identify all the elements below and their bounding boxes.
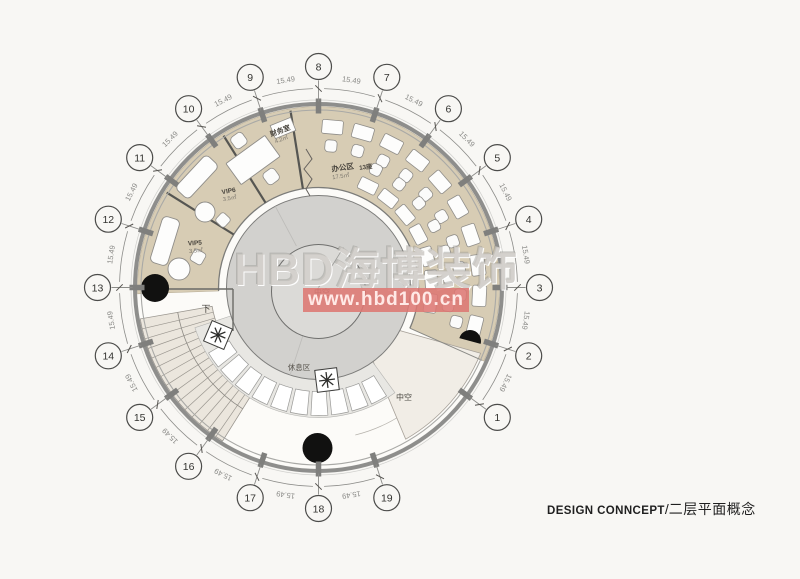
dimension-arc	[262, 89, 313, 97]
grid-bubble: 2	[516, 343, 542, 369]
chair	[449, 315, 464, 330]
dimension-label: 15.49	[497, 182, 514, 203]
desk	[321, 119, 343, 135]
dimension-arc	[324, 89, 375, 97]
chair	[324, 139, 337, 152]
grid-bubble: 16	[176, 453, 202, 479]
dimension-label: 15.49	[457, 129, 477, 149]
vip5-table	[168, 258, 190, 280]
grid-bubble-number: 10	[183, 104, 195, 116]
dimension-label: 15.49	[403, 92, 424, 109]
zone-label-atrium-lower: 中空	[396, 392, 412, 402]
grid-bubble: 9	[237, 64, 263, 90]
rest-seat-segment	[311, 391, 328, 415]
grid-bubble: 17	[237, 485, 263, 511]
dimension-tick	[479, 166, 480, 175]
dimension-label: 15.49	[123, 372, 140, 393]
grid-bubble: 10	[176, 96, 202, 122]
solid-marker	[303, 433, 333, 463]
vip6-table	[195, 202, 215, 222]
dimension-arc	[509, 231, 517, 282]
dimension-label: 15.49	[105, 310, 117, 330]
watermark-url: www.hbd100.cn	[308, 289, 464, 311]
grid-leader-line	[255, 91, 262, 111]
grid-bubble-number: 15	[134, 412, 146, 424]
zone-label-rest-area: 休息区	[288, 362, 311, 372]
grid-bubble: 19	[374, 485, 400, 511]
grid-bubble-number: 9	[247, 72, 253, 84]
grid-bubble-number: 2	[526, 351, 532, 363]
floorplan-page: 15.4915.4915.4915.4915.4915.4915.4915.49…	[0, 0, 800, 579]
dimension-arc	[324, 478, 375, 486]
dimension-tick	[153, 170, 162, 171]
grid-leader-line	[376, 464, 383, 484]
drawing-title-en: DESIGN CONNCEPT	[547, 505, 665, 517]
dimension-arc	[120, 293, 128, 344]
grid-bubble: 8	[306, 54, 332, 80]
dimension-label: 15.49	[520, 245, 532, 265]
grid-bubble: 5	[484, 145, 510, 171]
chair	[452, 261, 466, 275]
desk	[424, 270, 438, 290]
grid-bubble-number: 17	[244, 493, 256, 505]
grid-bubble: 3	[527, 275, 553, 301]
dimension-tick	[201, 444, 202, 453]
grid-leader-line	[122, 345, 142, 352]
dimension-label: 15.49	[276, 74, 296, 86]
desk	[472, 285, 487, 307]
grid-bubble: 4	[516, 206, 542, 232]
grid-bubble-number: 16	[183, 461, 195, 473]
dimension-label: 15.49	[213, 92, 234, 109]
grid-bubble-number: 4	[526, 214, 532, 226]
grid-bubble-number: 19	[381, 493, 393, 505]
chair	[443, 272, 455, 284]
dimension-label: 15.49	[520, 310, 532, 330]
dimension-label: 15.49	[160, 426, 180, 446]
grid-bubble: 6	[435, 96, 461, 122]
grid-bubble: 11	[127, 145, 153, 171]
watermark-band: www.hbd100.cn	[303, 288, 469, 312]
dimension-label: 15.49	[341, 489, 361, 501]
grid-bubble-number: 14	[102, 351, 114, 363]
dimension-label: 15.49	[497, 372, 514, 393]
grid-bubble-number: 1	[494, 412, 500, 424]
dimension-arc	[120, 231, 128, 282]
dimension-label: 15.49	[341, 74, 361, 86]
grid-bubble-number: 3	[537, 282, 543, 294]
dimension-arc	[509, 293, 517, 344]
grid-bubble: 15	[127, 404, 153, 430]
grid-bubble-number: 5	[494, 152, 500, 164]
dimension-tick	[475, 404, 484, 405]
grid-bubble-number: 6	[445, 104, 451, 116]
dimension-tick	[157, 400, 158, 409]
dimension-label: 15.49	[213, 466, 234, 483]
grid-bubble: 12	[95, 206, 121, 232]
grid-bubble: 7	[374, 64, 400, 90]
room-label-vip5: VIP5	[188, 239, 203, 247]
dimension-arc	[262, 478, 313, 486]
solid-marker	[141, 274, 169, 302]
stairs-down-label: 下	[201, 304, 210, 314]
dimension-label: 15.49	[160, 129, 180, 149]
grid-leader-line	[495, 224, 515, 231]
dimension-label: 15.49	[276, 489, 296, 501]
dimension-tick	[435, 122, 436, 131]
grid-bubble-number: 13	[92, 282, 104, 294]
ac-unit-symbol	[315, 368, 340, 393]
dimension-label: 15.49	[123, 182, 140, 203]
drawing-title-cn: 二层平面概念	[669, 501, 756, 517]
dimension-tick	[197, 126, 206, 127]
grid-bubble-number: 11	[134, 152, 145, 164]
grid-bubble: 1	[484, 404, 510, 430]
grid-bubble: 13	[85, 275, 111, 301]
grid-bubble-number: 18	[313, 503, 325, 515]
desk	[470, 254, 487, 277]
grid-bubble: 18	[306, 496, 332, 522]
drawing-title: DESIGN CONNCEPT/二层平面概念	[547, 499, 756, 519]
grid-bubble-number: 8	[316, 61, 322, 73]
dimension-label: 15.49	[105, 245, 117, 265]
grid-bubble: 14	[95, 343, 121, 369]
grid-bubble-number: 7	[384, 72, 390, 84]
grid-bubble-number: 12	[102, 214, 114, 226]
